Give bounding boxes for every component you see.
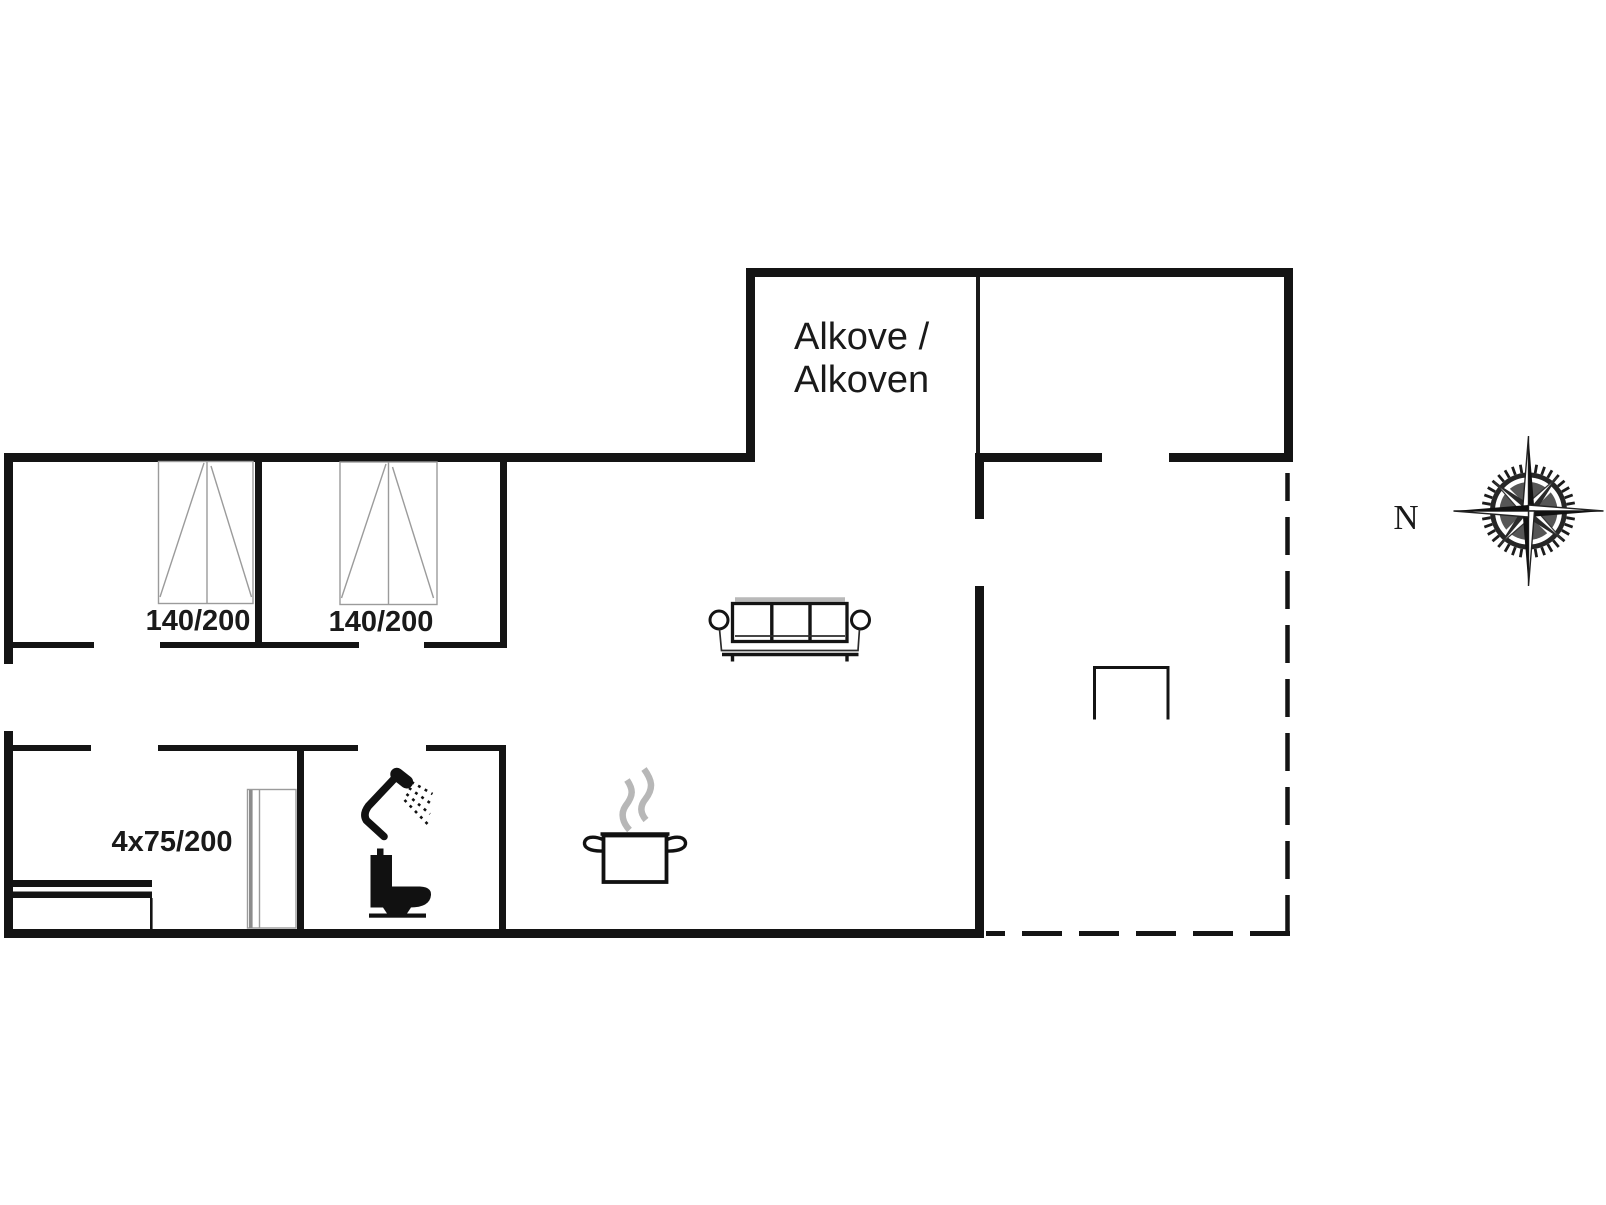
- svg-text:140/200: 140/200: [146, 605, 251, 637]
- svg-text:140/200: 140/200: [329, 606, 434, 638]
- svg-text:Alkove /: Alkove /: [794, 316, 930, 358]
- svg-text:N: N: [1393, 498, 1418, 537]
- svg-text:4x75/200: 4x75/200: [112, 826, 233, 858]
- svg-text:Alkoven: Alkoven: [794, 359, 929, 401]
